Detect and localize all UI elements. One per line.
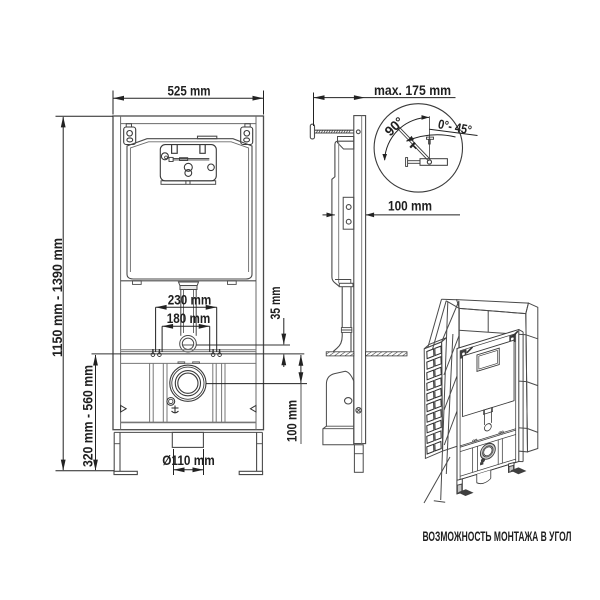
svg-text:35 mm: 35 mm <box>268 286 283 319</box>
svg-text:ВОЗМОЖНОСТЬ МОНТАЖА В УГОЛ: ВОЗМОЖНОСТЬ МОНТАЖА В УГОЛ <box>423 528 572 544</box>
svg-text:180 mm: 180 mm <box>167 311 210 326</box>
svg-text:525 mm: 525 mm <box>168 84 211 99</box>
svg-text:230 mm: 230 mm <box>168 292 211 307</box>
svg-text:100 mm: 100 mm <box>388 199 432 214</box>
svg-text:100 mm: 100 mm <box>285 400 300 442</box>
svg-text:Ø110 mm: Ø110 mm <box>162 453 215 468</box>
svg-text:max. 175 mm: max. 175 mm <box>374 83 451 98</box>
svg-text:320 mm - 560 mm: 320 mm - 560 mm <box>81 365 96 467</box>
svg-text:1150 mm - 1390 mm: 1150 mm - 1390 mm <box>50 238 65 357</box>
